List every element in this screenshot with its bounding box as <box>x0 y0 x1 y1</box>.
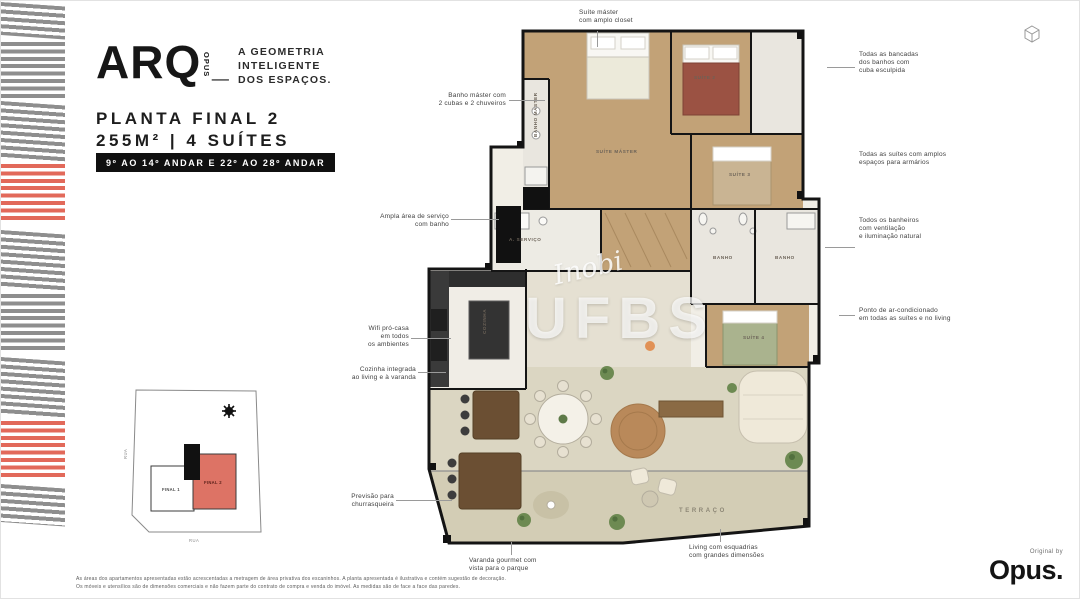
gourmet-counter <box>448 453 522 509</box>
street-label-bottom: RUA <box>189 538 199 543</box>
annotation-right-2: Todas as suítes com amplos espaços para … <box>859 151 946 167</box>
disclaimer-text: As áreas dos apartamentos apresentadas e… <box>76 575 506 591</box>
annotation-right-3: Todos os banheiros com ventilação e ilum… <box>859 217 921 241</box>
stripe-block <box>1 357 65 418</box>
brand-wordmark: ARQ <box>96 35 201 89</box>
annotation-left-2: Ampla área de serviço com banho <box>341 213 449 229</box>
leader-line <box>411 338 451 339</box>
leader-line <box>511 542 512 555</box>
leader-line <box>418 372 446 373</box>
leader-line <box>509 100 545 101</box>
brand-underscore: _ <box>212 51 229 85</box>
annotation-left-1: Banho máster com 2 cubas e 2 chuveiros <box>396 92 506 108</box>
leader-line <box>839 315 855 316</box>
annotation-bottom-2: Living com esquadrias com grandes dimens… <box>689 544 764 560</box>
site-map: FINAL 1 FINAL 2 RUA RUA <box>116 384 271 549</box>
leader-line <box>597 31 598 47</box>
site-final2-label: FINAL 2 <box>204 480 222 485</box>
stripe-block <box>1 484 65 526</box>
annotation-right-4: Ponto de ar-condicionado em todas as suí… <box>859 307 951 323</box>
stripe-block <box>1 42 65 99</box>
room-label-terraco: TERRAÇO <box>679 508 727 514</box>
opus-logo: Opus. <box>959 555 1063 586</box>
terrace-lounge <box>533 491 569 519</box>
leader-line <box>827 67 855 68</box>
suite2-bed <box>683 45 739 115</box>
annotation-bottom-1: Varanda gourmet com vista para o parque <box>469 557 537 573</box>
leader-line <box>451 219 499 220</box>
leader-line <box>720 529 721 542</box>
room-label-suite4: SUÍTE 4 <box>743 333 765 340</box>
plan-title: PLANTA FINAL 2 <box>96 109 281 129</box>
room-label-suite3: SUÍTE 3 <box>729 170 751 177</box>
annotation-right-1: Todas as bancadas dos banhos com cuba es… <box>859 51 918 75</box>
stripe-block-red <box>1 421 65 478</box>
hall-bath-top <box>751 31 803 134</box>
kitchen-island <box>461 391 520 439</box>
stripe-block-red <box>1 164 65 221</box>
room-label-cozinha: COZINHA <box>482 309 487 334</box>
annotation-left-3: Wifi pró-casa em todos os ambientes <box>301 325 409 349</box>
stripe-block <box>1 101 65 162</box>
annotation-top: Suíte máster com amplo closet <box>579 9 633 25</box>
watermark-dot <box>645 341 655 351</box>
brand-tagline: A GEOMETRIA INTELIGENTE DOS ESPAÇOS. <box>238 45 332 87</box>
stripe-block <box>1 2 65 39</box>
watermark-main: UFBS <box>525 285 715 352</box>
annotation-left-4: Cozinha integrada ao living e à varanda <box>306 366 416 382</box>
tv-console <box>659 401 723 417</box>
room-label-suite2: SUÍTE 2 <box>694 73 716 80</box>
sofa <box>739 371 807 443</box>
round-rug <box>611 404 665 458</box>
annotation-left-5: Previsão para churrasqueira <box>286 493 394 509</box>
cube-icon <box>1023 25 1041 43</box>
site-core <box>184 444 200 480</box>
stripe-block <box>1 294 65 351</box>
leader-line <box>825 247 855 248</box>
page: ARQ OPUS _ A GEOMETRIA INTELIGENTE DOS E… <box>0 0 1080 599</box>
room-label-suite-master: SUÍTE MÁSTER <box>596 147 637 154</box>
room-label-banho2: BANHO <box>775 255 795 260</box>
room-label-banho-master: BANHO MÁSTER <box>532 92 538 137</box>
leader-line <box>396 500 452 501</box>
floors-badge: 9º AO 14º ANDAR E 22º AO 28º ANDAR <box>96 153 335 172</box>
plan-subtitle: 255M² | 4 SUÍTES <box>96 131 290 151</box>
brand-wordmark-vertical: OPUS <box>202 52 211 77</box>
site-final1-label: FINAL 1 <box>162 487 180 492</box>
room-label-banho1: BANHO <box>713 255 733 260</box>
room-label-servico: A. SERVIÇO <box>509 237 541 242</box>
street-label-left: RUA <box>123 449 128 459</box>
stripe-block <box>1 230 65 292</box>
compass-icon <box>222 404 236 418</box>
